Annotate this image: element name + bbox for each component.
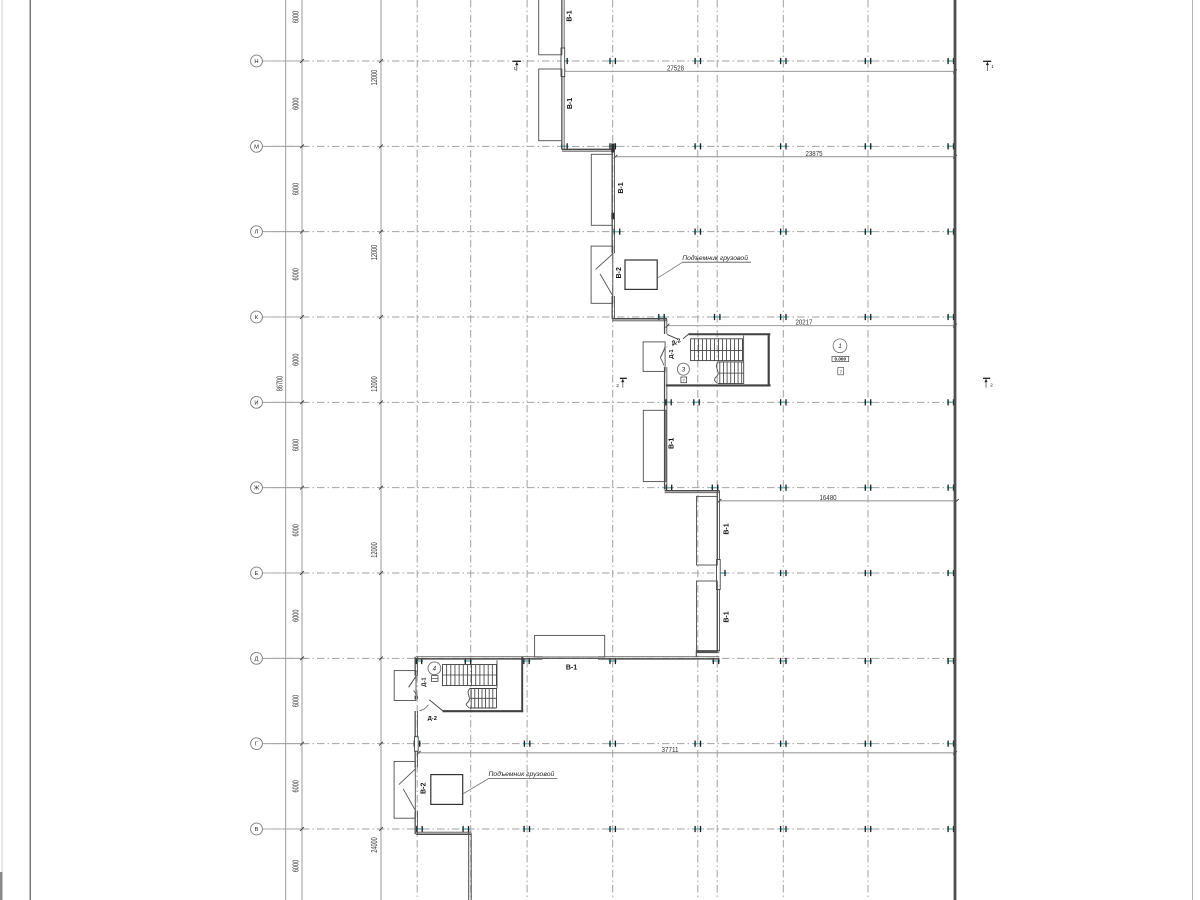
svg-text:И: И [254,400,258,406]
svg-text:6000: 6000 [291,694,300,707]
svg-text:В-1: В-1 [724,523,731,534]
svg-text:6000: 6000 [291,10,300,23]
svg-text:37711: 37711 [662,747,679,754]
svg-text:16480: 16480 [820,495,837,502]
svg-text:В-2: В-2 [616,267,623,278]
svg-text:12000: 12000 [370,244,379,260]
svg-text:Д-1: Д-1 [422,677,428,687]
svg-text:Д-2: Д-2 [428,716,438,722]
svg-text:27528: 27528 [667,66,684,73]
svg-text:86700: 86700 [276,375,285,391]
svg-text:6000: 6000 [291,353,300,366]
svg-text:6000: 6000 [291,438,300,451]
svg-text:6000: 6000 [291,609,300,622]
svg-text:6000: 6000 [291,524,300,537]
svg-text:2: 2 [990,382,993,388]
svg-text:6000: 6000 [291,268,300,281]
svg-text:Л: Л [255,230,259,236]
svg-text:Д: Д [255,656,259,662]
svg-text:Ж: Ж [254,486,260,492]
svg-text:3: 3 [682,367,686,374]
svg-text:1: 1 [513,66,516,72]
svg-text:12000: 12000 [370,376,379,392]
svg-text:1: 1 [838,344,841,350]
svg-text:24000: 24000 [370,837,379,853]
svg-text:12000: 12000 [370,542,379,558]
svg-text:В-1: В-1 [618,182,625,193]
svg-text:0.000: 0.000 [835,357,847,362]
svg-text:В-1: В-1 [567,98,574,109]
svg-text:4: 4 [433,666,437,673]
svg-text:В-2: В-2 [420,783,427,794]
svg-text:В: В [255,827,259,833]
svg-text:1: 1 [991,64,994,70]
svg-text:12000: 12000 [370,69,379,85]
svg-text:Подъемник грузовой: Подъемник грузовой [682,254,748,262]
svg-text:20217: 20217 [796,320,813,327]
svg-text:23875: 23875 [806,151,823,158]
svg-text:Е: Е [255,571,259,577]
svg-text:6000: 6000 [291,182,300,195]
svg-text:6000: 6000 [291,859,300,872]
svg-text:Д-1: Д-1 [669,349,675,359]
svg-text:В-1: В-1 [669,438,676,449]
svg-text:В-1: В-1 [566,664,577,671]
svg-text:М: М [254,144,259,150]
svg-text:В-1: В-1 [566,10,573,21]
svg-text:В-1: В-1 [724,611,731,622]
svg-text:Н: Н [254,59,258,65]
svg-text:6000: 6000 [291,97,300,110]
svg-text:Подъемник грузовой: Подъемник грузовой [489,770,555,778]
svg-text:6000: 6000 [291,780,300,793]
svg-text:2: 2 [616,383,619,389]
